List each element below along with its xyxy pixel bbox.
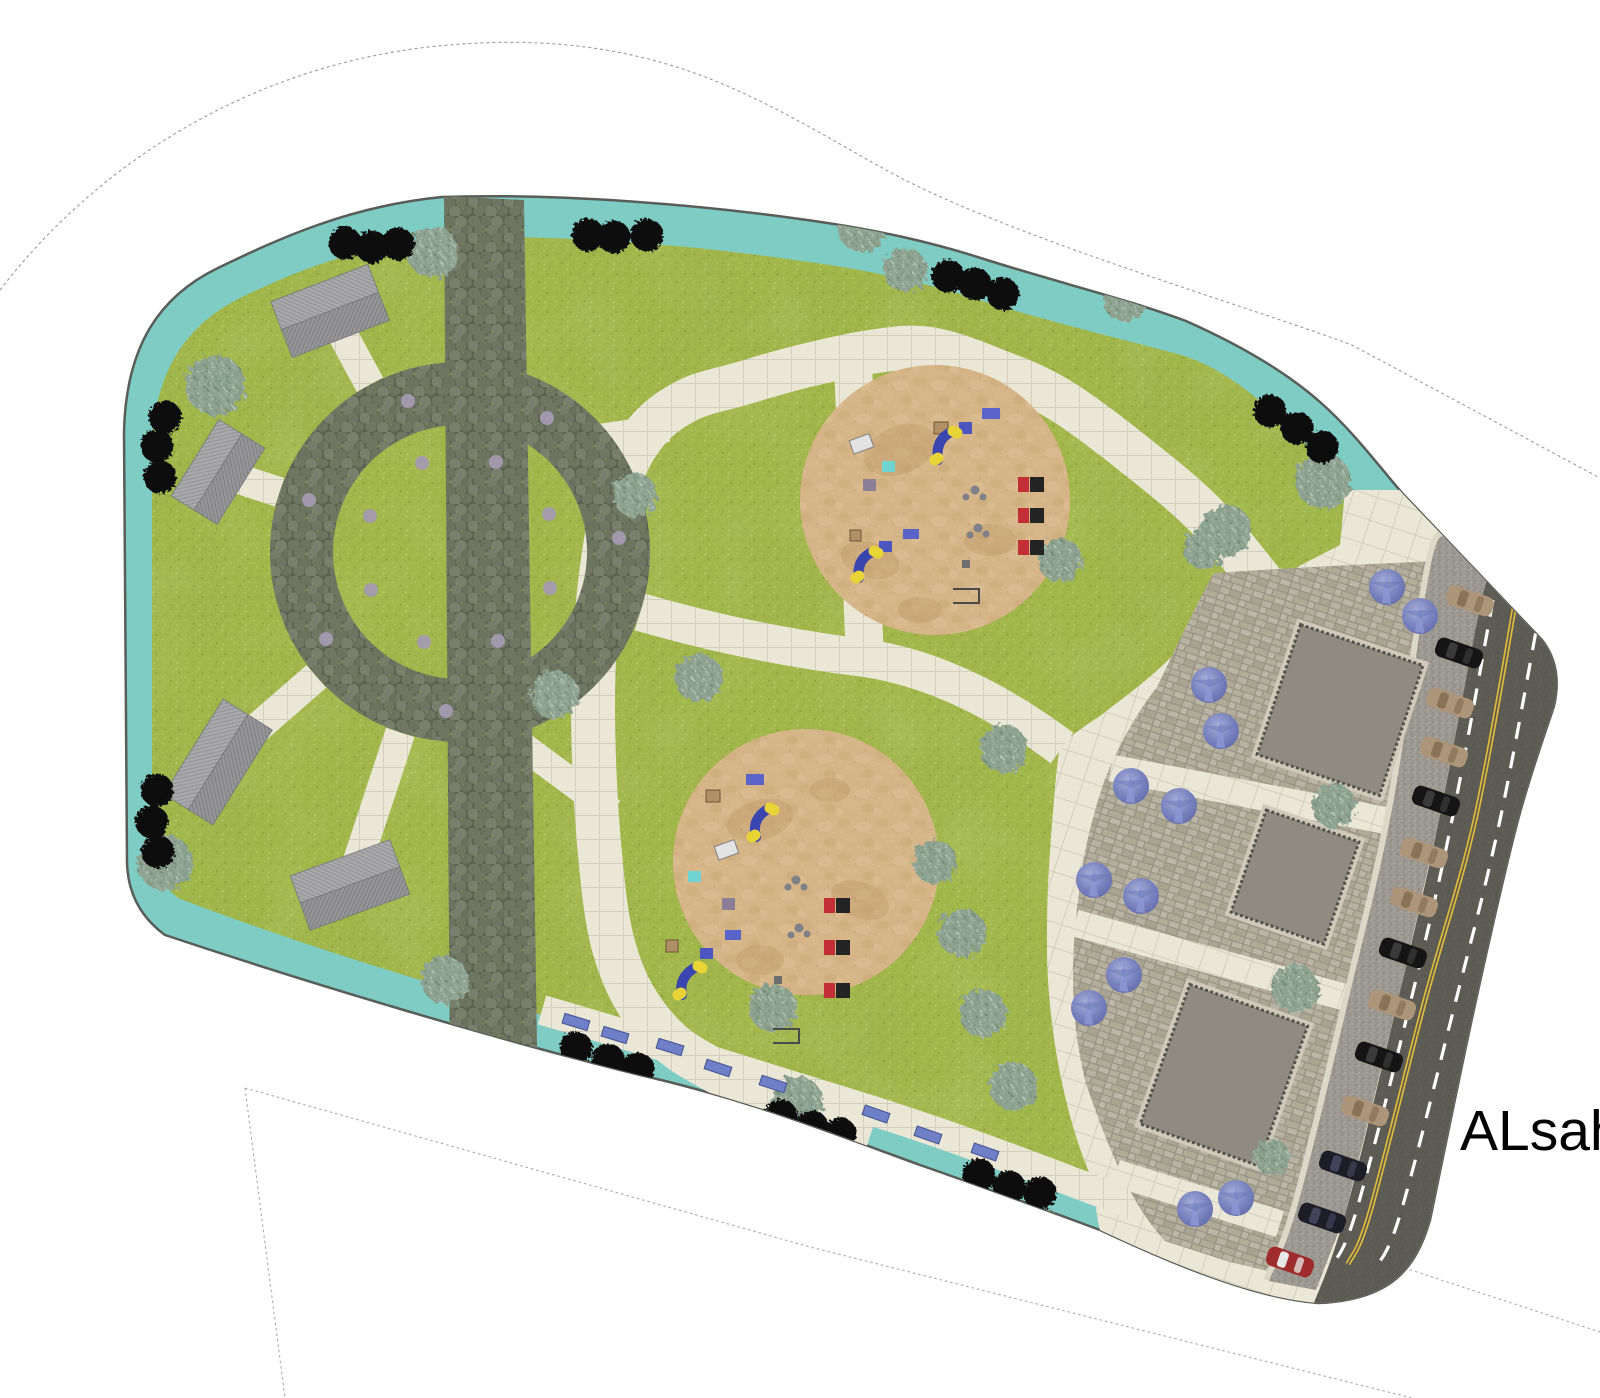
svg-text:ALsahafa: ALsahafa [1460, 1099, 1600, 1163]
